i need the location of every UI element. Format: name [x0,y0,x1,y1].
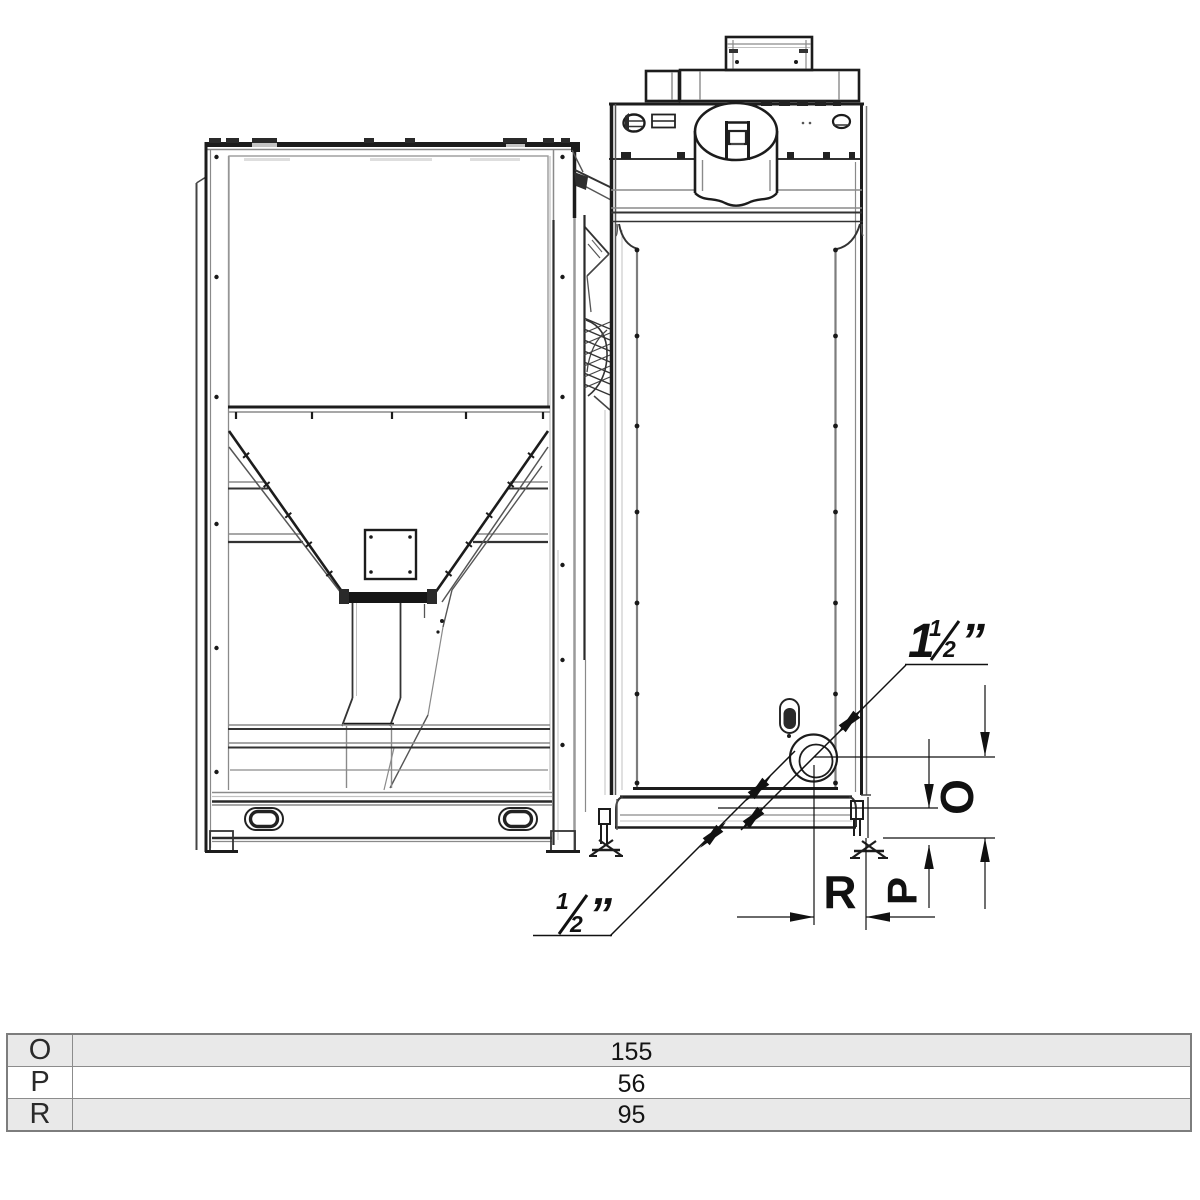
svg-text:”: ” [961,615,985,668]
svg-text:R: R [823,866,856,918]
svg-text:P: P [879,877,926,905]
svg-text:O: O [931,779,983,815]
svg-text:2: 2 [569,911,583,937]
svg-text:2: 2 [942,636,956,662]
svg-text:1: 1 [929,615,942,641]
svg-text:1: 1 [556,888,569,914]
svg-text:”: ” [589,888,612,940]
